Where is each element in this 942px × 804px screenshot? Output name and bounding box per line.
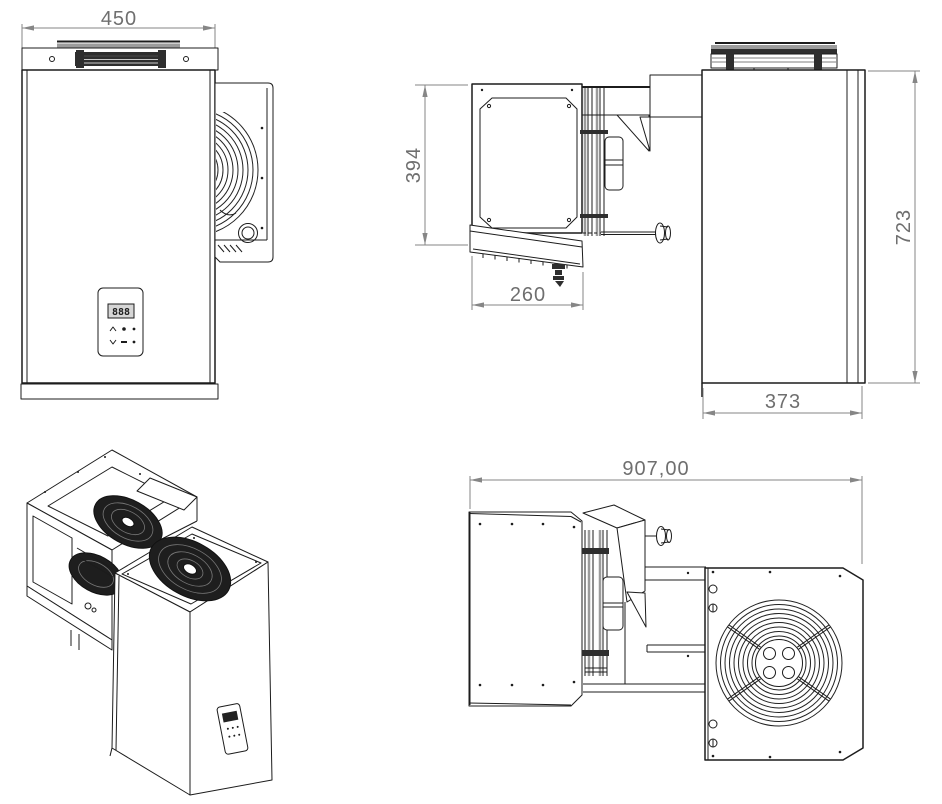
set-button-icon (122, 327, 126, 331)
wall-wedge (627, 592, 646, 627)
overall-side-view: 907,00 (469, 458, 863, 760)
dimension-723-label: 723 (893, 209, 915, 245)
refrigerant-pipes (580, 88, 608, 236)
side-view-condenser: 723 373 (702, 43, 920, 419)
capacitor (605, 137, 623, 190)
pipe-clamp (580, 130, 608, 134)
sight-glass (603, 577, 623, 630)
top-mounting-rail (22, 42, 218, 71)
dimension-394: 394 (403, 85, 468, 245)
fan-hub (756, 640, 803, 687)
dimension-723: 723 (868, 71, 920, 383)
light-button-icon (133, 328, 136, 331)
dimension-260-label: 260 (510, 284, 546, 306)
standby-button-icon (121, 341, 127, 343)
dimension-373-label: 373 (765, 391, 801, 413)
isometric-view (27, 450, 272, 795)
pipe-clamp (582, 650, 609, 656)
technical-drawing-page: 450 888 (0, 0, 942, 804)
control-panel: 888 (98, 288, 143, 356)
temperature-display: 888 (112, 307, 130, 318)
defrost-button-icon (133, 341, 136, 344)
mounting-bracket-3d (583, 505, 672, 627)
dimension-373: 373 (703, 386, 862, 419)
side-view-evaporator: 394 260 (403, 75, 703, 310)
condenser-panel-rear (705, 568, 863, 760)
top-mounting-rail (711, 43, 837, 72)
cabinet-body (702, 70, 865, 397)
pipe-clamp (580, 214, 608, 218)
pipe-clamp (582, 548, 609, 554)
evaporator-panel-rear (469, 512, 582, 706)
dimension-394-label: 394 (403, 147, 425, 183)
dimension-450-label: 450 (101, 8, 137, 30)
monoblock-unit-drawing: 450 888 (0, 0, 942, 804)
drip-tray (470, 225, 583, 287)
front-view: 450 888 (21, 8, 273, 399)
dimension-907-label: 907,00 (622, 458, 689, 480)
evaporator-box (472, 84, 582, 233)
drain-spout (552, 264, 565, 287)
